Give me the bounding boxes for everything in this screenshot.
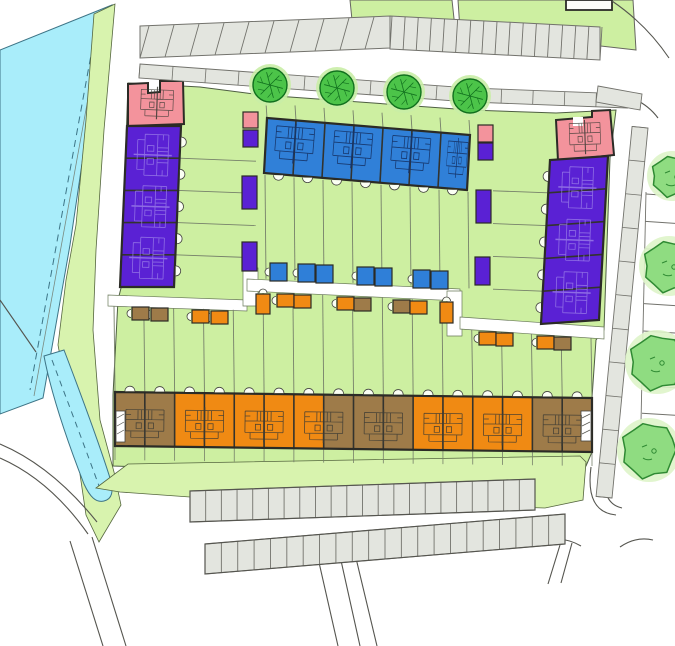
south-garden-shed bbox=[256, 294, 270, 314]
west-column-shed bbox=[243, 130, 258, 147]
west-column-shed bbox=[242, 242, 257, 271]
site-plan-page bbox=[0, 0, 675, 646]
east-column-shed bbox=[476, 190, 491, 223]
blue-garden-shed bbox=[357, 267, 374, 285]
blue-garden-shed bbox=[413, 270, 430, 288]
south-garden-shed bbox=[479, 332, 496, 345]
sidewalk-north-east-segment-line bbox=[533, 90, 534, 104]
residential-site-plan bbox=[0, 0, 675, 646]
east-column-shed bbox=[475, 257, 490, 285]
south-garden-shed bbox=[337, 297, 354, 310]
west-purple-terrace-unit bbox=[126, 126, 181, 158]
south-garden-shed bbox=[354, 298, 371, 311]
blue-garden-shed bbox=[316, 265, 333, 283]
blue-garden-shed bbox=[375, 268, 392, 286]
west-column-shed bbox=[243, 112, 258, 128]
sidewalk-north-east-segment-line bbox=[564, 92, 565, 106]
west-pink-void bbox=[147, 80, 161, 93]
sidewalk-north-east-segment-line bbox=[501, 89, 502, 103]
south-garden-shed bbox=[192, 310, 209, 323]
south-garden-shed bbox=[393, 300, 410, 313]
east-column-shed bbox=[478, 143, 493, 160]
south-garden-shed bbox=[132, 307, 149, 320]
north-parcel-building bbox=[566, 0, 612, 10]
blue-garden-shed bbox=[270, 263, 287, 281]
south-garden-shed bbox=[554, 337, 571, 350]
south-garden-shed bbox=[277, 294, 294, 307]
south-garden-shed bbox=[151, 308, 168, 321]
east-column-shed bbox=[478, 125, 493, 142]
west-purple-terrace-unit bbox=[124, 158, 179, 190]
blue-garden-shed bbox=[298, 264, 315, 282]
south-garden-shed bbox=[537, 336, 554, 349]
south-garden-shed bbox=[294, 295, 311, 308]
west-column-shed bbox=[242, 176, 257, 209]
east-purple-terrace-unit bbox=[546, 189, 606, 226]
blue-garden-shed bbox=[431, 271, 448, 289]
south-garden-shed bbox=[211, 311, 228, 324]
south-garden-shed bbox=[410, 301, 427, 314]
west-purple-terrace-unit bbox=[120, 255, 175, 287]
south-garden-shed bbox=[496, 333, 513, 346]
south-garden-shed bbox=[440, 302, 453, 323]
